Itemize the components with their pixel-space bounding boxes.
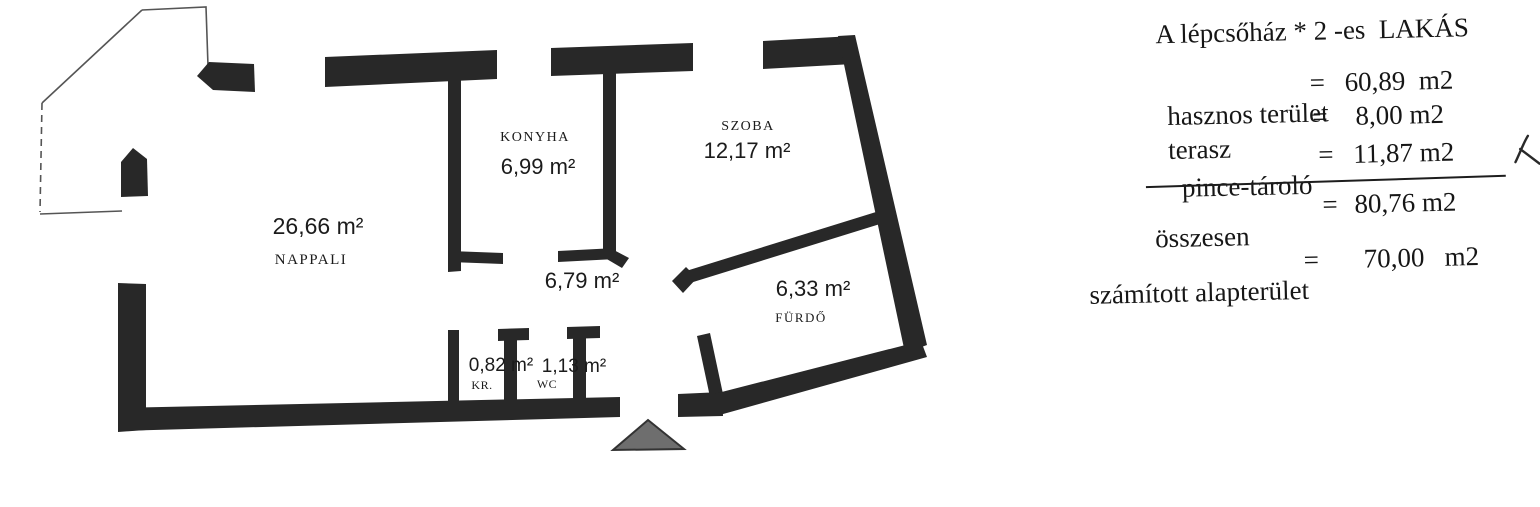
wall-konyha-door-jamb-left <box>450 251 503 264</box>
furdo-area-label: 6,33 m² <box>776 278 851 300</box>
wall-furdo-bottom <box>710 341 927 416</box>
equals-sign: = <box>1318 140 1334 170</box>
equals-sign: = <box>1309 68 1325 98</box>
terrace-outline-top <box>142 7 208 66</box>
wc-area-label: 1,13 m² <box>542 357 606 376</box>
wall-hall-door-jamb <box>605 248 629 268</box>
terrace-outline-left <box>40 103 42 212</box>
wall-kr-wc-stub-cap <box>498 328 529 341</box>
wall-kr-stub <box>448 330 459 406</box>
summary-row-osszesen: összesen = 80,76 m2 <box>1084 185 1540 230</box>
summary-title: A lépcsőház * 2 -es LAKÁS <box>1155 13 1469 50</box>
wall-partition-nappali-konyha <box>448 78 461 272</box>
szoba-name-label: SZOBA <box>721 120 774 134</box>
equals-sign: = <box>1312 102 1328 132</box>
handwritten-mark <box>1511 131 1540 168</box>
summary-row-value: 70,00 m2 <box>1363 242 1479 274</box>
summary-row-pince: pince-tároló = 11,87 m2 <box>1083 135 1540 180</box>
wall-partition-szoba-furdo <box>686 212 880 283</box>
terrace-outline-diagonal <box>42 10 142 103</box>
wc-name-label: WC <box>537 378 557 390</box>
scanned-floorplan-page: 26,66 m² NAPPALI KONYHA 6,99 m² SZOBA 12… <box>0 0 1540 507</box>
summary-row-value: 60,89 m2 <box>1344 66 1453 98</box>
summary-row-value: 80,76 m2 <box>1354 188 1457 220</box>
nappali-name-label: NAPPALI <box>275 253 347 268</box>
terrace-outline-bottom <box>40 211 122 214</box>
nappali-area-label: 26,66 m² <box>273 215 364 238</box>
kamra-area-label: 0,82 m² <box>469 356 533 375</box>
kamra-name-label: KR. <box>471 379 492 391</box>
konyha-name-label: KONYHA <box>500 131 570 145</box>
equals-sign: = <box>1303 246 1319 276</box>
furdo-name-label: FÜRDŐ <box>775 311 827 324</box>
wall-top-nappali <box>325 50 497 87</box>
wall-wc-hall-stub-cap <box>567 326 600 339</box>
summary-row-value: 11,87 m2 <box>1353 138 1455 170</box>
entrance-arrow <box>613 420 684 450</box>
wall-bottom <box>118 397 620 431</box>
wall-terrace-door-jamb <box>197 62 255 92</box>
wall-furdo-left-stub <box>697 333 723 397</box>
summary-row-szamitott: számított alapterület = 70,00 m2 <box>1085 240 1540 285</box>
equals-sign: = <box>1322 190 1338 220</box>
szoba-area-label: 12,17 m² <box>704 140 791 162</box>
wall-terrace-pillar <box>121 148 148 197</box>
wall-partition-konyha-hall <box>603 70 616 253</box>
area-summary-block: A lépcsőház * 2 -es LAKÁS hasznos terüle… <box>1080 3 1540 314</box>
hall-area-label: 6,79 m² <box>545 270 620 292</box>
floor-plan-drawing <box>0 0 960 470</box>
wall-top-konyha <box>551 43 693 76</box>
wall-right-slanted <box>838 35 927 353</box>
summary-row-value: 8,00 m2 <box>1355 100 1444 132</box>
summary-row-label: számított alapterület <box>1089 276 1309 311</box>
konyha-area-label: 6,99 m² <box>501 156 576 178</box>
